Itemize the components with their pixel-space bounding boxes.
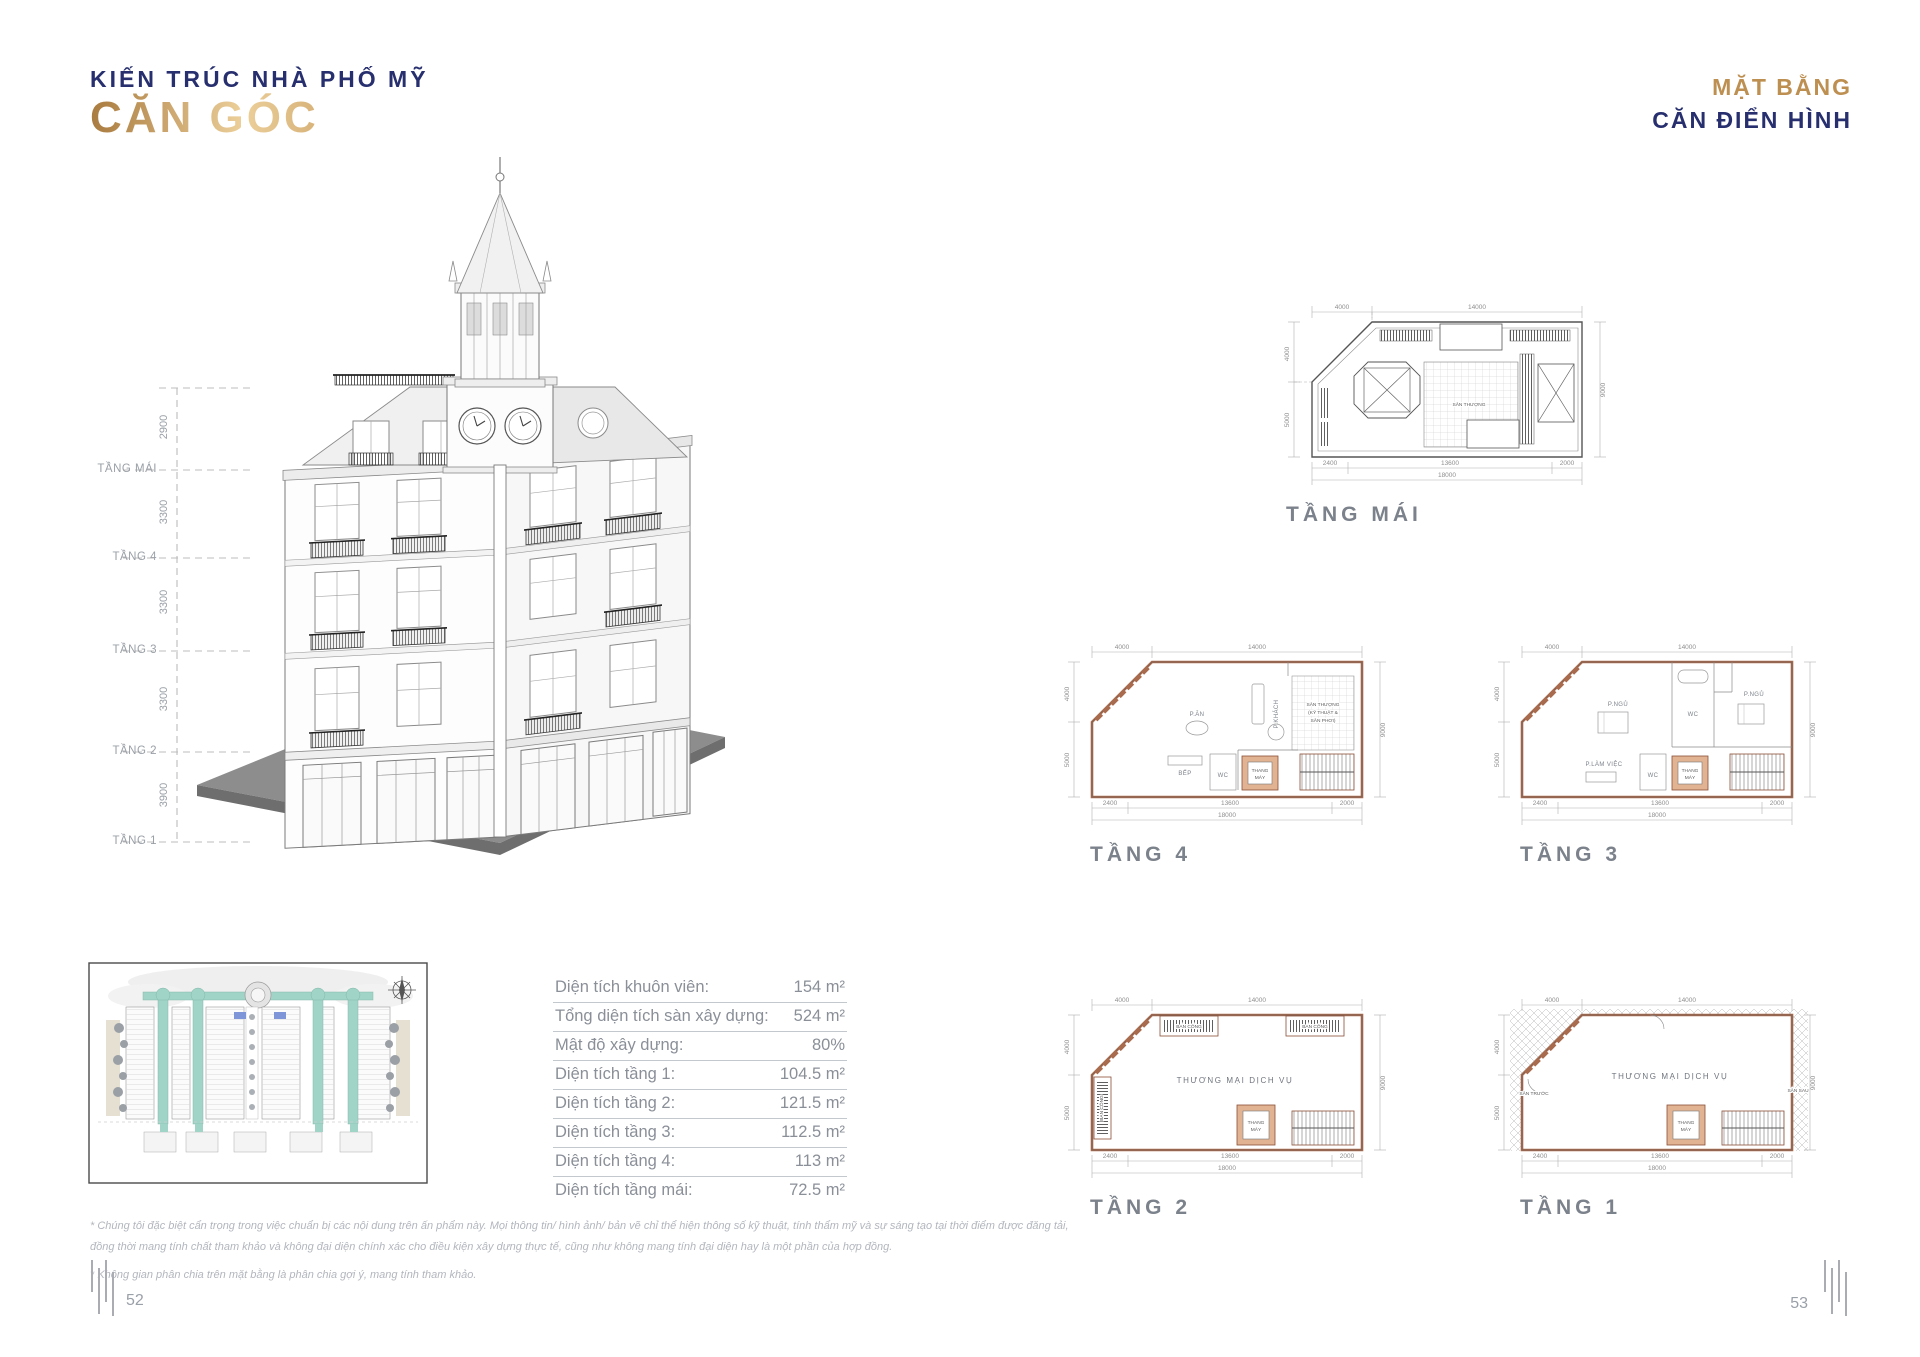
disclaimer-line3: * Không gian phân chia trên mặt bằng là … [90,1265,1069,1286]
plan-dim-label: 2400 [1533,1153,1548,1160]
right-page-title: MẶT BẰNG CĂN ĐIỂN HÌNH [1560,74,1852,134]
plan-caption-tang-3: TẦNG 3 [1520,843,1827,867]
table-row: Diện tích tầng 1:104.5 m² [553,1061,847,1090]
plan-dim-label: 4000 [1494,1039,1501,1054]
footer-bars-right [1814,1258,1850,1318]
room-label-back-yard: SÂN SAU [1787,1087,1809,1094]
plan-dim-label: 2400 [1533,800,1548,807]
plan-dim-label: 4000 [1545,644,1560,651]
plan-dim-label: 5000 [1064,752,1071,767]
plan-dim-label: 5000 [1064,1105,1071,1120]
plan-dim-label: 13600 [1441,460,1459,467]
disclaimer-line2: đồng thời mang tính chất tham khảo và kh… [90,1237,1069,1258]
right-title-line2: CĂN ĐIỂN HÌNH [1560,107,1852,134]
plan-dim-label: 5000 [1494,752,1501,767]
plan-dim-label: 4000 [1284,346,1291,361]
room-label-office: P.LÀM VIỆC [1586,760,1623,768]
table-row: Mật độ xây dựng:80% [553,1032,847,1061]
plan-caption-tang-4: TẦNG 4 [1090,843,1397,867]
plan-dim-label: 4000 [1115,997,1130,1004]
plan-dim-label: 18000 [1218,1165,1236,1172]
plan-dim-label: 5000 [1494,1105,1501,1120]
floor-plan-figure-tang-2: 4000 14000 4000 5000 9000 2400 13600 200… [1052,985,1397,1220]
plan-dim-label: 2000 [1340,800,1355,807]
plan-caption-tang-1: TẦNG 1 [1520,1196,1827,1220]
floor-plan-figure-tang-1: 4000 14000 4000 5000 9000 2400 13600 200… [1482,985,1827,1220]
room-label-bedroom-2: P.NGỦ [1744,691,1764,698]
building-illustration [185,135,730,900]
right-title-line1: MẶT BẰNG [1560,74,1852,101]
plan-dim-label: 14000 [1248,644,1266,651]
plan-dim-label: 4000 [1545,997,1560,1004]
room-label-elevator-2: MÁY [1685,774,1696,781]
plan-caption-tang-mai: TẦNG MÁI [1286,503,1617,527]
floor-dim-3300a: 3300 [158,492,170,532]
plan-dim-label: 14000 [1678,644,1696,651]
plan-dim-label: 4000 [1494,686,1501,701]
room-label-terrace-2: (KỸ THUẬT & [1308,709,1338,716]
plan-caption-tang-2: TẦNG 2 [1090,1196,1397,1220]
floor-plan-tang-4: 4000 14000 4000 5000 9000 2400 13600 200… [1052,632,1397,832]
footer-bars-left [88,1258,124,1318]
floor-dim-3300c: 3300 [158,679,170,719]
spec-value: 154 m² [794,978,845,997]
room-label-balcony-2: BAN CÔNG [1302,1023,1328,1030]
plan-dim-label: 18000 [1218,812,1236,819]
plan-dim-label: 4000 [1335,304,1350,311]
left-page-title: KIẾN TRÚC NHÀ PHỐ MỸ CĂN GÓC [90,66,429,143]
room-label-san-thuong: SÂN THƯỢNG [1453,401,1486,408]
room-label-elevator-1: THANG [1682,768,1699,774]
spec-value: 121.5 m² [780,1094,845,1113]
floor-scale-label-t3: TẦNG 3 [85,644,157,656]
floor-plan-tang-3: 4000 14000 4000 5000 9000 2400 13600 200… [1482,632,1827,832]
page-number-right: 53 [1780,1295,1808,1313]
room-label-commercial: THƯƠNG MẠI DỊCH VỤ [1612,1072,1729,1081]
spec-value: 104.5 m² [780,1065,845,1084]
plan-dim-label: 13600 [1221,800,1239,807]
room-label-elevator-1: THANG [1248,1120,1265,1126]
plan-dim-label: 2400 [1103,1153,1118,1160]
floor-scale-label-mai: TẦNG MÁI [85,463,157,475]
spec-label: Diện tích khuôn viên: [555,978,709,997]
room-label-elevator-2: MÁY [1251,1126,1262,1133]
spec-value: 80% [812,1036,845,1055]
floor-plan-tang-2: 4000 14000 4000 5000 9000 2400 13600 200… [1052,985,1397,1185]
plan-dim-label: 9000 [1810,1075,1817,1090]
spec-value: 113 m² [795,1152,845,1171]
room-label-wc: WC [1218,773,1229,779]
spec-label: Diện tích tầng 1: [555,1065,675,1084]
plan-dim-label: 2000 [1560,460,1575,467]
plan-dim-label: 2000 [1770,800,1785,807]
plan-dim-label: 2400 [1103,800,1118,807]
room-label-living: P.KHÁCH [1273,700,1280,729]
spec-label: Diện tích tầng 4: [555,1152,675,1171]
floor-plan-tang-mai: 4000 14000 4000 5000 9000 2400 13600 200… [1272,292,1617,492]
floor-plan-tang-1: 4000 14000 4000 5000 9000 2400 13600 200… [1482,985,1827,1185]
room-label-bedroom-1: P.NGỦ [1608,701,1628,708]
plan-dim-label: 2000 [1770,1153,1785,1160]
plan-dim-label: 18000 [1648,812,1666,819]
floor-dim-3300b: 3300 [158,582,170,622]
disclaimer-line1: * Chúng tôi đặc biệt cẩn trọng trong việ… [90,1216,1069,1237]
floor-plan-figure-tang-3: 4000 14000 4000 5000 9000 2400 13600 200… [1482,632,1827,867]
plan-dim-label: 9000 [1380,722,1387,737]
plan-dim-label: 4000 [1064,1039,1071,1054]
room-label-balcony-3: BAN CÔNG [1098,1095,1105,1121]
floor-scale-label-t1: TẦNG 1 [85,835,157,847]
plan-dim-label: 14000 [1468,304,1486,311]
spec-value: 72.5 m² [789,1181,845,1200]
room-label-terrace-1: SÂN THƯỢNG [1307,701,1340,708]
floor-scale-label-t4: TẦNG 4 [85,551,157,563]
plan-dim-label: 13600 [1651,800,1669,807]
page-number-left: 52 [126,1292,144,1310]
spec-label: Diện tích tầng 3: [555,1123,675,1142]
room-label-elevator-1: THANG [1252,768,1269,774]
spec-label: Diện tích tầng 2: [555,1094,675,1113]
plan-dim-label: 9000 [1810,722,1817,737]
floor-dim-2900: 2900 [158,407,170,447]
floor-scale-label-t2: TẦNG 2 [85,745,157,757]
table-row: Diện tích tầng mái:72.5 m² [553,1177,847,1205]
room-label-dining: P.ĂN [1190,711,1205,718]
floor-dim-3900: 3900 [158,775,170,815]
spec-value: 112.5 m² [781,1123,845,1142]
table-row: Diện tích tầng 4:113 m² [553,1148,847,1177]
disclaimer-text: * Chúng tôi đặc biệt cẩn trọng trong việ… [90,1216,1069,1286]
plan-dim-label: 4000 [1064,686,1071,701]
spec-label: Mật độ xây dựng: [555,1036,683,1055]
room-label-elevator-2: MÁY [1255,774,1266,781]
spec-value: 524 m² [794,1007,845,1026]
room-label-front-yard: SÂN TRƯỚC [1519,1090,1549,1097]
table-row: Tổng diện tích sàn xây dựng:524 m² [553,1003,847,1032]
floor-plan-figure-tang-mai: 4000 14000 4000 5000 9000 2400 13600 200… [1272,292,1617,527]
spec-label: Tổng diện tích sàn xây dựng: [555,1007,769,1026]
plan-dim-label: 18000 [1438,472,1456,479]
room-label-wc-1: WC [1688,712,1699,718]
left-title-line1: KIẾN TRÚC NHÀ PHỐ MỸ [90,66,429,93]
floor-plan-figure-tang-4: 4000 14000 4000 5000 9000 2400 13600 200… [1052,632,1397,867]
table-row: Diện tích tầng 3:112.5 m² [553,1119,847,1148]
plan-dim-label: 2400 [1323,460,1338,467]
plan-dim-label: 2000 [1340,1153,1355,1160]
table-row: Diện tích tầng 2:121.5 m² [553,1090,847,1119]
plan-dim-label: 9000 [1380,1075,1387,1090]
plan-dim-label: 18000 [1648,1165,1666,1172]
plan-dim-label: 9000 [1600,382,1607,397]
room-label-elevator-1: THANG [1678,1120,1695,1126]
room-label-commercial: THƯƠNG MẠI DỊCH VỤ [1177,1076,1294,1085]
table-row: Diện tích khuôn viên:154 m² [553,974,847,1003]
site-plan-map [88,962,428,1184]
room-label-balcony-1: BAN CÔNG [1176,1023,1202,1030]
room-label-kitchen: BẾP [1178,770,1191,777]
plan-dim-label: 13600 [1221,1153,1239,1160]
plan-dim-label: 14000 [1678,997,1696,1004]
plan-dim-label: 14000 [1248,997,1266,1004]
area-spec-table: Diện tích khuôn viên:154 m² Tổng diện tí… [553,974,847,1205]
plan-dim-label: 4000 [1115,644,1130,651]
plan-dim-label: 5000 [1284,412,1291,427]
room-label-elevator-2: MÁY [1681,1126,1692,1133]
spec-label: Diện tích tầng mái: [555,1181,693,1200]
plan-dim-label: 13600 [1651,1153,1669,1160]
room-label-terrace-3: SÂN PHƠI) [1311,717,1336,724]
brochure-spread: { "left_page": { "title_line1": "KIẾN TR… [0,0,1920,1357]
room-label-wc-2: WC [1648,773,1659,779]
